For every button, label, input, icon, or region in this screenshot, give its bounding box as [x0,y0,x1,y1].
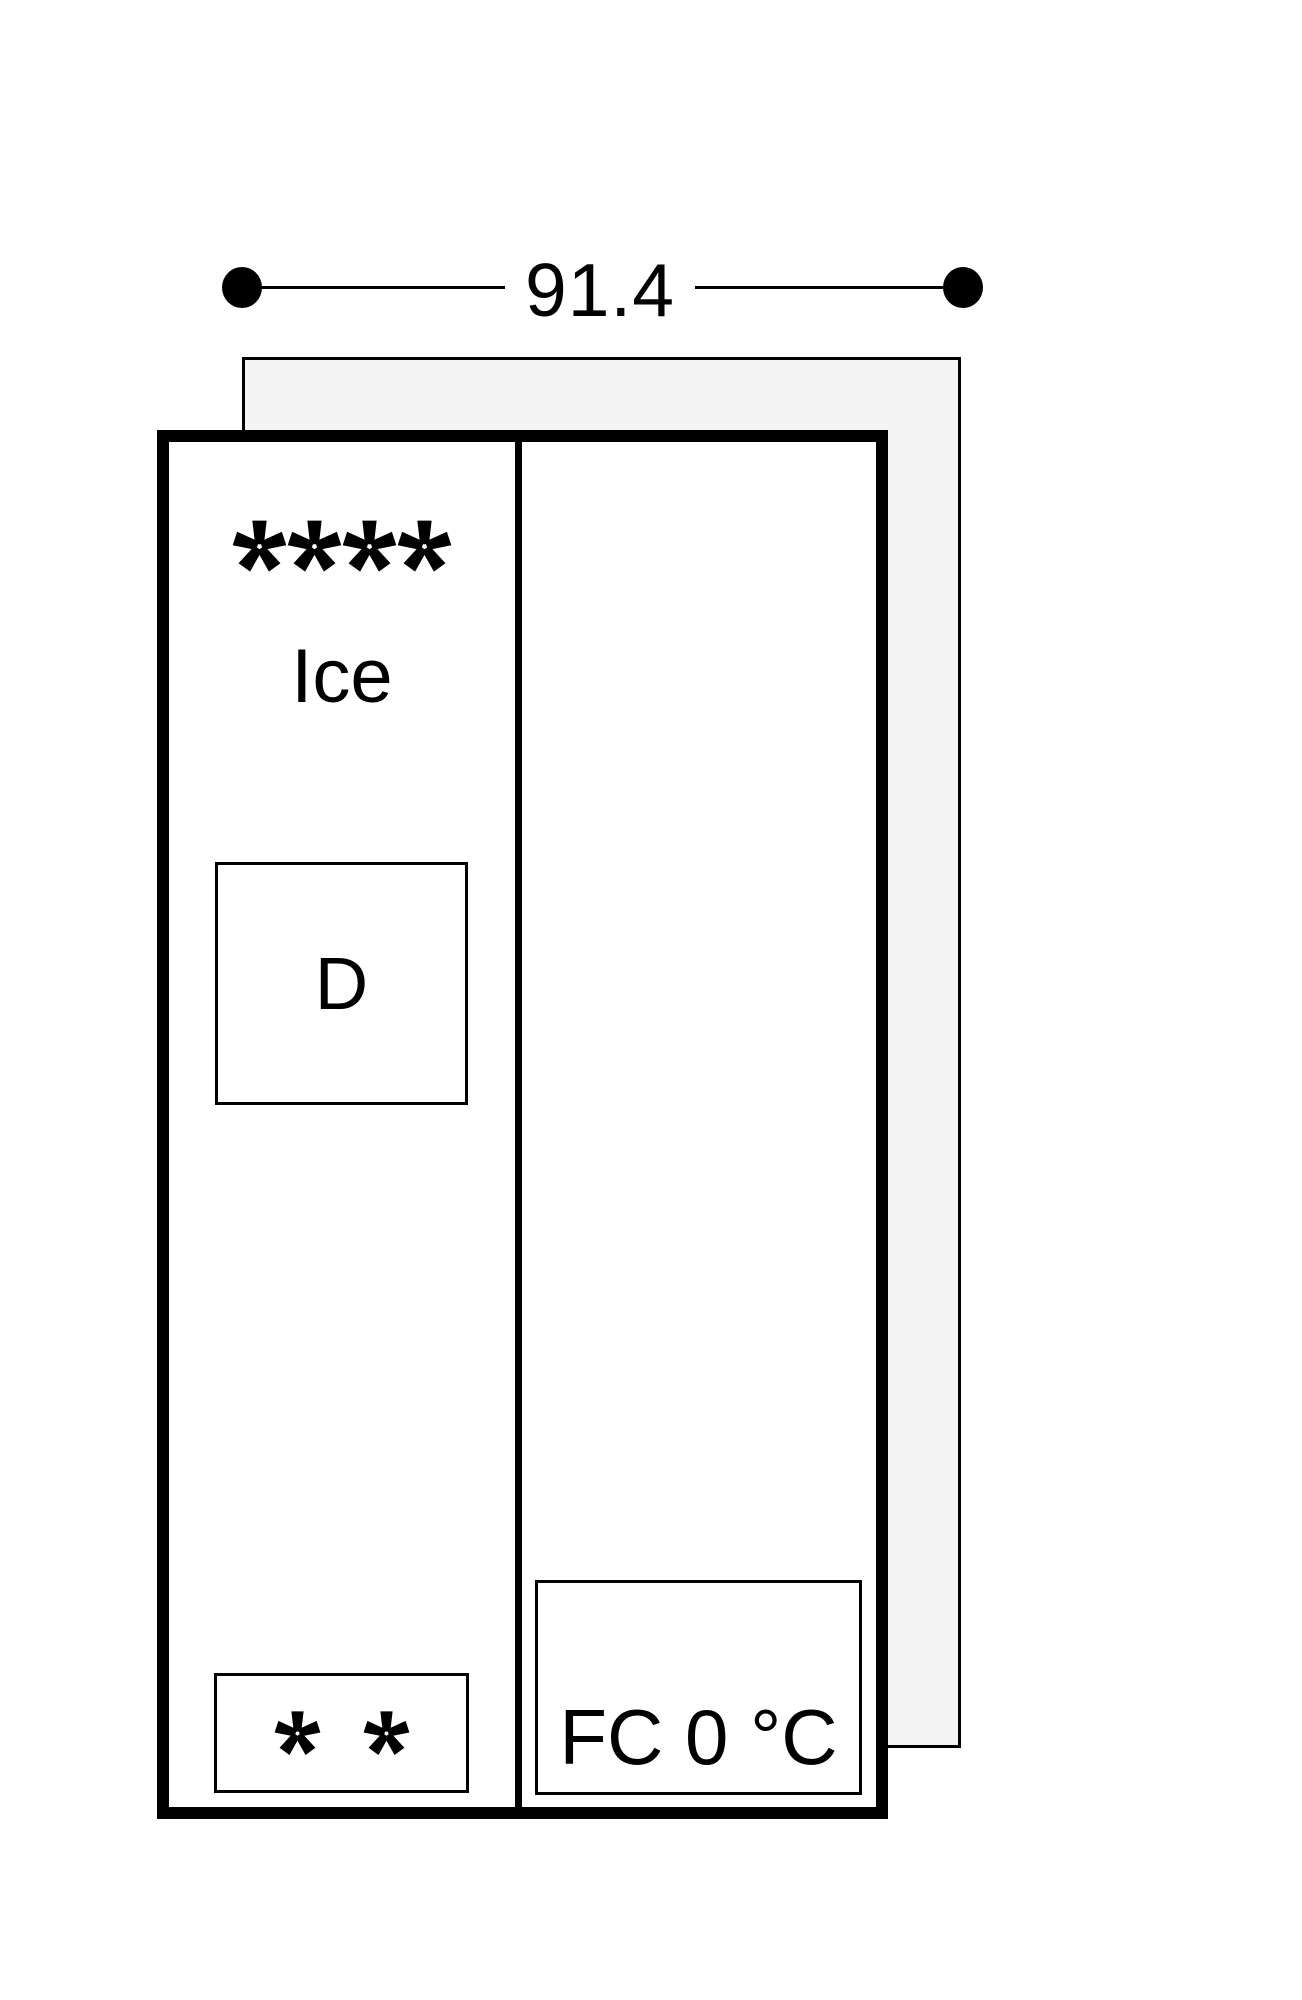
dimension-dot-left-icon [222,267,262,308]
two-star-zone-box [214,1673,469,1793]
freezer-star-icon [363,1710,410,1757]
four-star-freezer-rating [169,518,515,575]
appliance-width-diagram: 91.4 [0,0,1302,2000]
fresh-cooling-zone-box: FC 0 °C [535,1580,862,1795]
dimension-dot-right-icon [943,267,983,308]
freezer-star-icon [274,1710,321,1757]
compartment-divider [515,441,522,1808]
freezer-star-icon [397,519,452,574]
dispenser-box: D [215,862,468,1105]
width-dimension-label: 91.4 [505,251,695,329]
fresh-cooling-zone-label: FC 0 °C [559,1698,837,1776]
freezer-star-icon [342,519,397,574]
freezer-star-icon [232,519,287,574]
dispenser-box-label: D [315,947,368,1021]
ice-maker-label: Ice [169,639,515,715]
freezer-star-icon [287,519,342,574]
